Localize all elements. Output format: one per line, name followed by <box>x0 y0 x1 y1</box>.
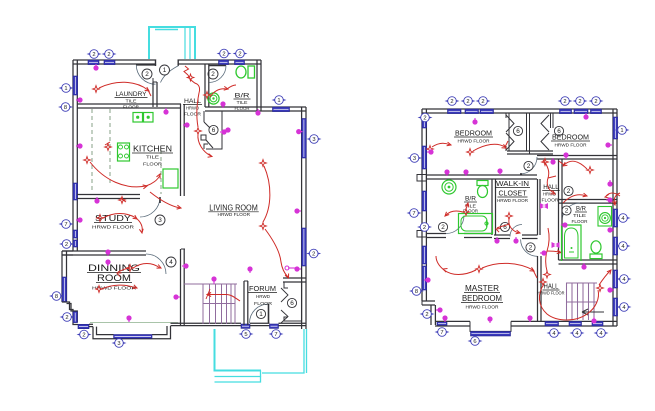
svg-text:HRWD FLOOR: HRWD FLOOR <box>538 291 565 296</box>
svg-text:LAUNDRY: LAUNDRY <box>116 91 147 98</box>
svg-text:2: 2 <box>107 52 110 58</box>
svg-text:8: 8 <box>415 289 418 295</box>
svg-text:3: 3 <box>117 341 120 347</box>
svg-text:FLOOR: FLOOR <box>235 106 251 111</box>
svg-text:2: 2 <box>563 99 566 105</box>
svg-text:BEDROOM: BEDROOM <box>455 131 492 138</box>
svg-text:2: 2 <box>92 52 95 58</box>
svg-text:2: 2 <box>312 252 315 258</box>
svg-text:2: 2 <box>65 315 68 321</box>
svg-text:2: 2 <box>423 225 426 231</box>
svg-text:5: 5 <box>244 332 247 338</box>
svg-text:1: 1 <box>163 67 167 74</box>
svg-text:WALK-IN: WALK-IN <box>496 179 529 188</box>
svg-text:HRWD FLOOR: HRWD FLOOR <box>92 225 135 230</box>
svg-text:6: 6 <box>290 300 294 307</box>
svg-text:8: 8 <box>55 294 58 300</box>
svg-text:2: 2 <box>527 163 531 170</box>
svg-text:2: 2 <box>529 245 533 252</box>
svg-text:KITCHEN: KITCHEN <box>133 145 172 154</box>
svg-text:TILE: TILE <box>573 213 586 218</box>
svg-text:2: 2 <box>481 99 484 105</box>
svg-text:HRWD FLOOR: HRWD FLOOR <box>458 139 490 144</box>
svg-text:4: 4 <box>169 259 173 266</box>
svg-text:FORUM: FORUM <box>249 286 276 293</box>
svg-text:2: 2 <box>145 71 149 78</box>
svg-text:2: 2 <box>565 208 569 215</box>
svg-text:7: 7 <box>274 332 277 338</box>
svg-text:3: 3 <box>158 217 162 224</box>
svg-text:2: 2 <box>466 99 469 105</box>
svg-text:HRWD: HRWD <box>256 294 271 299</box>
svg-text:BEDROOM: BEDROOM <box>462 294 502 303</box>
svg-text:B/R: B/R <box>235 93 250 100</box>
svg-text:2: 2 <box>82 333 85 339</box>
svg-text:HALL: HALL <box>184 98 201 105</box>
svg-text:2: 2 <box>238 52 241 58</box>
svg-text:HRWD FLOOR: HRWD FLOOR <box>497 198 528 203</box>
svg-text:2: 2 <box>211 71 215 78</box>
svg-text:1: 1 <box>259 311 263 318</box>
svg-text:3: 3 <box>312 137 315 143</box>
svg-text:B/R: B/R <box>576 206 586 213</box>
svg-text:FLOOR: FLOOR <box>184 112 201 117</box>
svg-text:1: 1 <box>620 128 623 134</box>
svg-text:FLOOR: FLOOR <box>143 162 163 167</box>
svg-text:TILE: TILE <box>126 99 137 104</box>
svg-text:HALL: HALL <box>543 184 559 191</box>
svg-text:7: 7 <box>64 222 67 228</box>
svg-text:2: 2 <box>578 99 581 105</box>
svg-text:2: 2 <box>441 224 445 231</box>
svg-text:2: 2 <box>423 116 426 122</box>
svg-text:7: 7 <box>412 211 415 217</box>
svg-text:HRWD FLOOR: HRWD FLOOR <box>466 305 500 310</box>
svg-text:FLOOR: FLOOR <box>572 219 589 224</box>
svg-text:BEDROOM: BEDROOM <box>552 135 589 142</box>
svg-text:2: 2 <box>450 99 453 105</box>
svg-text:FLOOR: FLOOR <box>542 198 559 203</box>
svg-text:7: 7 <box>440 330 443 336</box>
svg-text:FLOOR: FLOOR <box>123 105 140 110</box>
svg-text:CLOSET: CLOSET <box>499 189 527 198</box>
svg-text:2: 2 <box>222 52 225 58</box>
svg-text:FLOOR: FLOOR <box>254 301 273 306</box>
svg-text:1: 1 <box>64 86 67 92</box>
svg-text:2: 2 <box>594 99 597 105</box>
svg-text:2: 2 <box>567 188 571 195</box>
svg-text:B/R: B/R <box>465 196 476 203</box>
svg-text:MASTER: MASTER <box>465 284 499 293</box>
svg-text:2: 2 <box>425 312 428 318</box>
svg-text:HRWD FLOOR: HRWD FLOOR <box>218 212 251 217</box>
svg-text:1: 1 <box>277 98 280 104</box>
svg-text:6: 6 <box>516 128 520 135</box>
svg-text:8: 8 <box>64 105 67 111</box>
svg-text:2: 2 <box>65 242 68 248</box>
svg-text:6: 6 <box>212 127 216 134</box>
svg-text:TILE: TILE <box>237 100 248 105</box>
svg-text:6: 6 <box>473 339 476 345</box>
svg-text:HALL: HALL <box>544 284 559 291</box>
svg-text:3: 3 <box>413 156 416 162</box>
svg-text:ROOM: ROOM <box>97 273 131 283</box>
svg-text:TILE: TILE <box>146 155 159 160</box>
svg-text:HRWD FLOOR: HRWD FLOOR <box>555 143 587 148</box>
